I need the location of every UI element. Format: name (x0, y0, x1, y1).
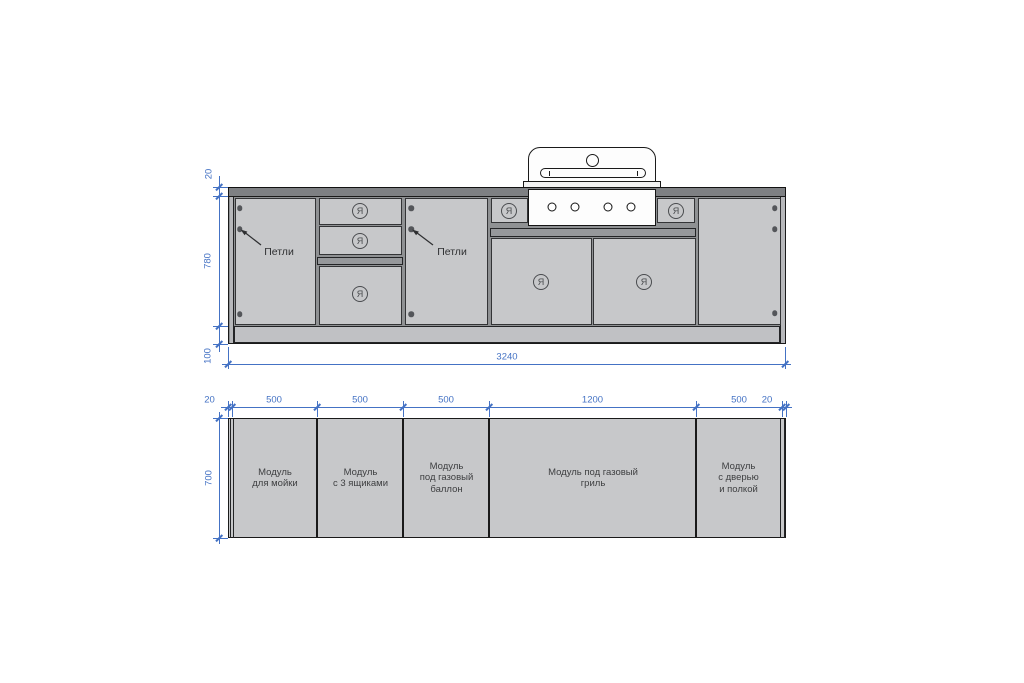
dim-total-width: 3240 (496, 351, 517, 362)
extension-line (213, 538, 228, 539)
dimension-line (221, 407, 792, 408)
plan-side-panel-right (780, 419, 785, 538)
module-label-line: баллон (430, 484, 462, 496)
extension-line (403, 401, 404, 417)
extension-line (317, 401, 318, 417)
dim-module-5: 500 (731, 394, 747, 405)
extension-line (489, 401, 490, 417)
extension-line (213, 187, 228, 188)
hinge-arrows (0, 0, 1024, 683)
module-label-line: и полкой (719, 484, 758, 496)
plan-module-door-shelf: Модуль с дверью и полкой (697, 418, 780, 538)
plan-module-drawers: Модуль с 3 ящиками (318, 418, 403, 538)
module-label-line: Модуль (430, 461, 464, 473)
extension-line (213, 344, 228, 345)
extension-line (228, 347, 229, 369)
hinge-arrowhead-icon (412, 230, 419, 236)
extension-line (213, 418, 228, 419)
extension-line (786, 401, 787, 417)
dim-countertop-thickness: 20 (204, 169, 215, 180)
plan-module-gas-cylinder: Модуль под газовый баллон (404, 418, 489, 538)
extension-line (785, 347, 786, 369)
module-label-line: под газовый (420, 472, 474, 484)
dim-side-panel-left: 20 (204, 394, 215, 405)
module-label-line: гриль (581, 478, 606, 490)
module-label-line: с дверью (718, 472, 759, 484)
dim-module-2: 500 (352, 394, 368, 405)
module-label-line: Модуль (722, 461, 756, 473)
dimension-line (222, 364, 791, 365)
module-label-line: Модуль под газовый (548, 467, 638, 479)
dim-plinth-height: 100 (203, 348, 214, 364)
dim-module-4: 1200 (582, 394, 603, 405)
dim-module-3: 500 (438, 394, 454, 405)
extension-line (213, 326, 228, 327)
module-label-line: с 3 ящиками (333, 478, 388, 490)
plan-module-sink: Модуль для мойки (233, 418, 317, 538)
dim-depth: 700 (203, 470, 214, 486)
extension-line (232, 401, 233, 417)
extension-line (213, 196, 228, 197)
module-label-line: для мойки (252, 478, 297, 490)
kitchen-drawing-canvas: Я Я Я Я Я Я Я Петли Петли 20 780 100 324… (0, 0, 1024, 683)
extension-line (696, 401, 697, 417)
module-label-line: Модуль (344, 467, 378, 479)
dim-side-panel-right: 20 (762, 394, 773, 405)
dim-module-1: 500 (266, 394, 282, 405)
dim-cabinet-height: 780 (203, 253, 214, 269)
module-label-line: Модуль (258, 467, 292, 479)
plan-module-gas-grill: Модуль под газовый гриль (490, 418, 696, 538)
dimension-line (219, 412, 220, 544)
